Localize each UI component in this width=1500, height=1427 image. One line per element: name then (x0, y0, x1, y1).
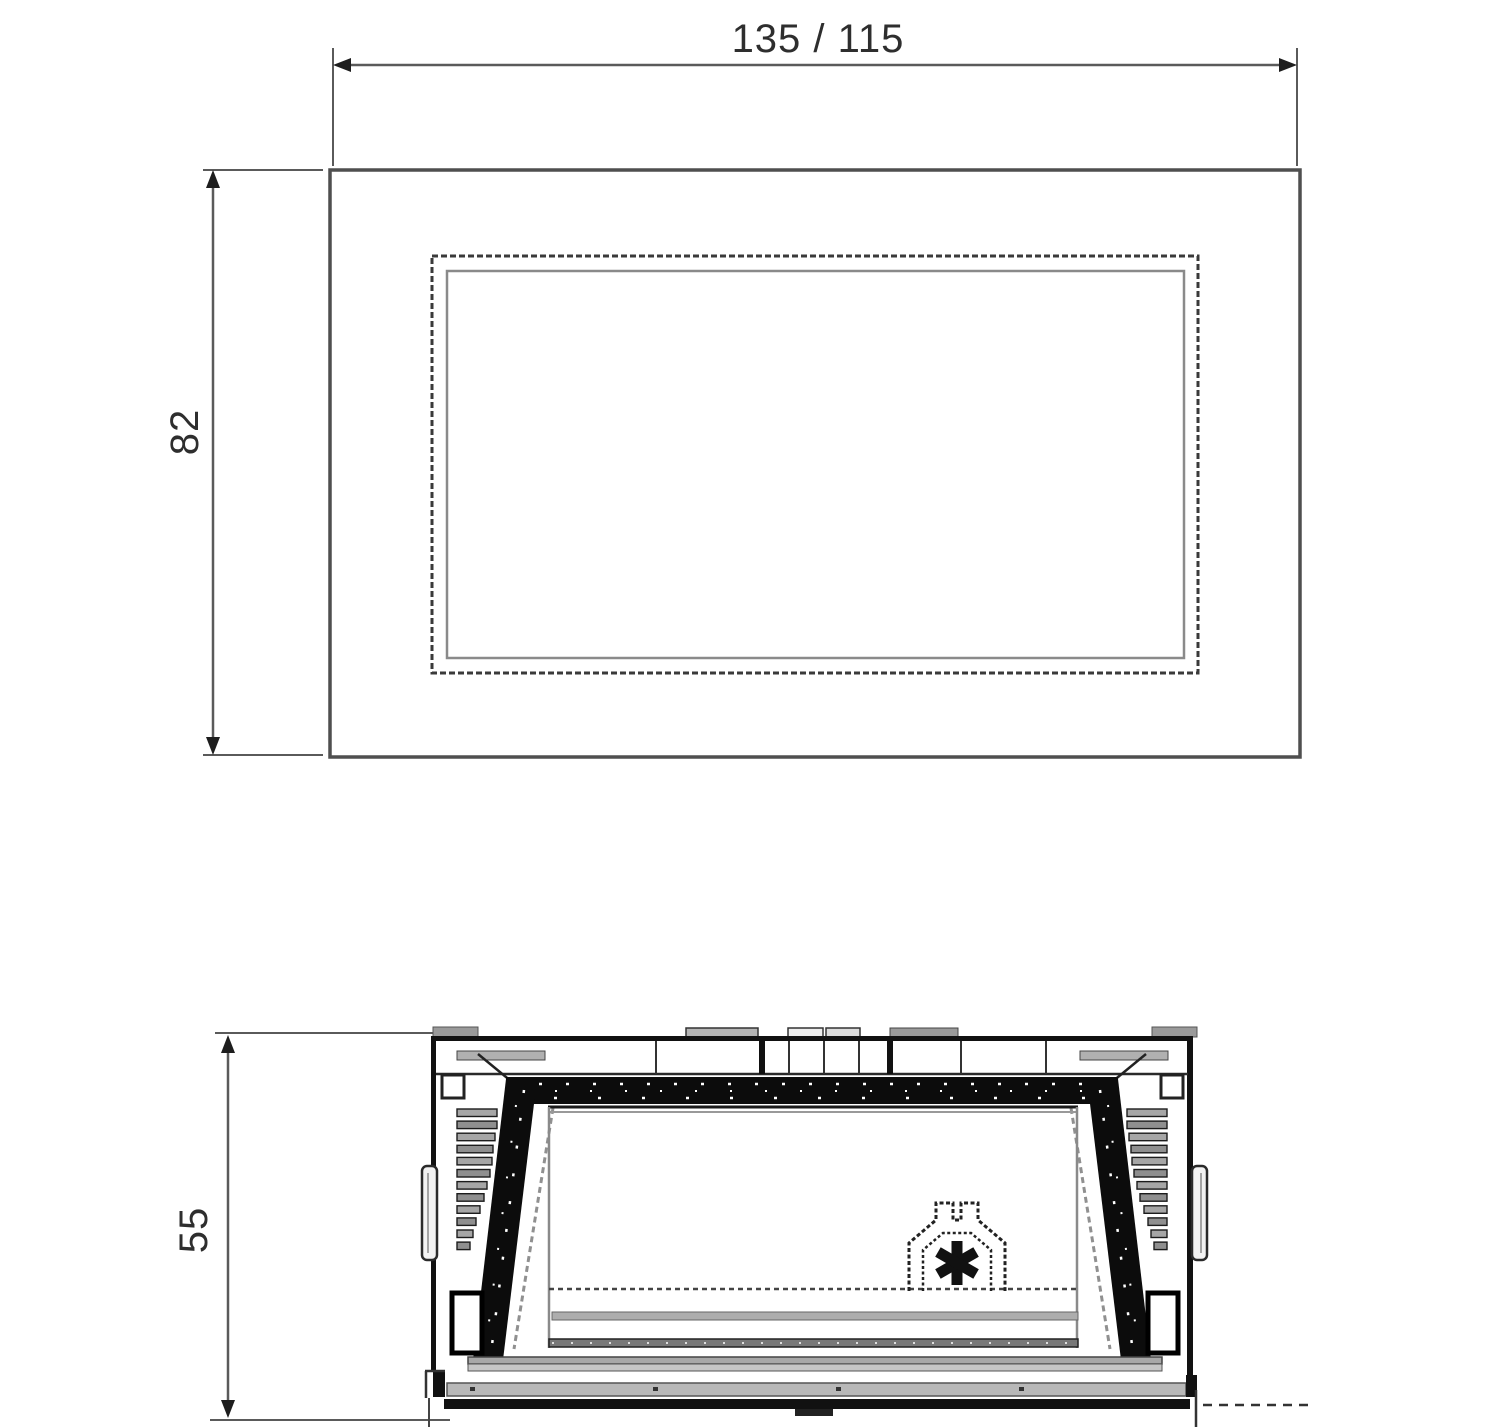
vent-slot (457, 1145, 493, 1153)
vent-slot (457, 1194, 484, 1202)
arrowhead-up (206, 170, 220, 188)
vent-slot (1144, 1206, 1167, 1214)
vent-slot (457, 1242, 470, 1250)
vent-slot (1127, 1109, 1167, 1117)
arrowhead-down (221, 1400, 235, 1418)
vent-slot (1151, 1230, 1167, 1238)
width-dimension-label: 135 / 115 (732, 17, 905, 61)
plan-opening-outer (432, 256, 1198, 673)
height-dimension-label: 82 (163, 409, 207, 456)
top-rail (431, 1036, 1193, 1041)
vent-slot (1140, 1194, 1167, 1202)
insulation-band (506, 1077, 1118, 1104)
vent-slot (457, 1133, 495, 1141)
left-handle (422, 1166, 437, 1260)
vent-slot (457, 1121, 497, 1129)
vent-slot (1134, 1170, 1167, 1178)
vent-slot (457, 1218, 476, 1226)
vent-slot (457, 1206, 480, 1214)
front-view (422, 1027, 1312, 1427)
vent-slot (1129, 1133, 1167, 1141)
technical-drawing-canvas: 135 / 115 82 55 (0, 0, 1500, 1427)
vent-slot (1148, 1218, 1167, 1226)
depth-dimension-label: 55 (172, 1207, 216, 1254)
plan-outer-frame (330, 170, 1300, 757)
arrowhead-up (221, 1035, 235, 1053)
vent-slot (457, 1170, 490, 1178)
vent-slot (457, 1157, 492, 1165)
arrowhead-left (333, 58, 351, 72)
hearth-base (425, 1357, 1312, 1427)
vent-slot (1154, 1242, 1167, 1250)
plan-view (330, 170, 1300, 757)
vent-slot (1132, 1157, 1167, 1165)
vent-slot (457, 1109, 497, 1117)
dimension-depth: 55 (172, 1033, 450, 1420)
dimension-height: 82 (163, 170, 323, 755)
base-plate (444, 1399, 1190, 1409)
vent-slot (457, 1230, 473, 1238)
arrowhead-right (1279, 58, 1297, 72)
vent-slot (1127, 1121, 1167, 1129)
vent-slot (457, 1182, 487, 1190)
vent-slot (1131, 1145, 1167, 1153)
arrowhead-down (206, 737, 220, 755)
plan-opening-inner (447, 271, 1184, 658)
dimension-width: 135 / 115 (333, 17, 1297, 166)
vent-slot (1137, 1182, 1167, 1190)
side-handles (422, 1166, 1207, 1260)
top-tabs (433, 1027, 1197, 1037)
firebox-interior (548, 1107, 1078, 1348)
fan-asterisk-icon (938, 1241, 976, 1285)
right-handle (1192, 1166, 1207, 1260)
air-duct-symbol (909, 1203, 1005, 1291)
